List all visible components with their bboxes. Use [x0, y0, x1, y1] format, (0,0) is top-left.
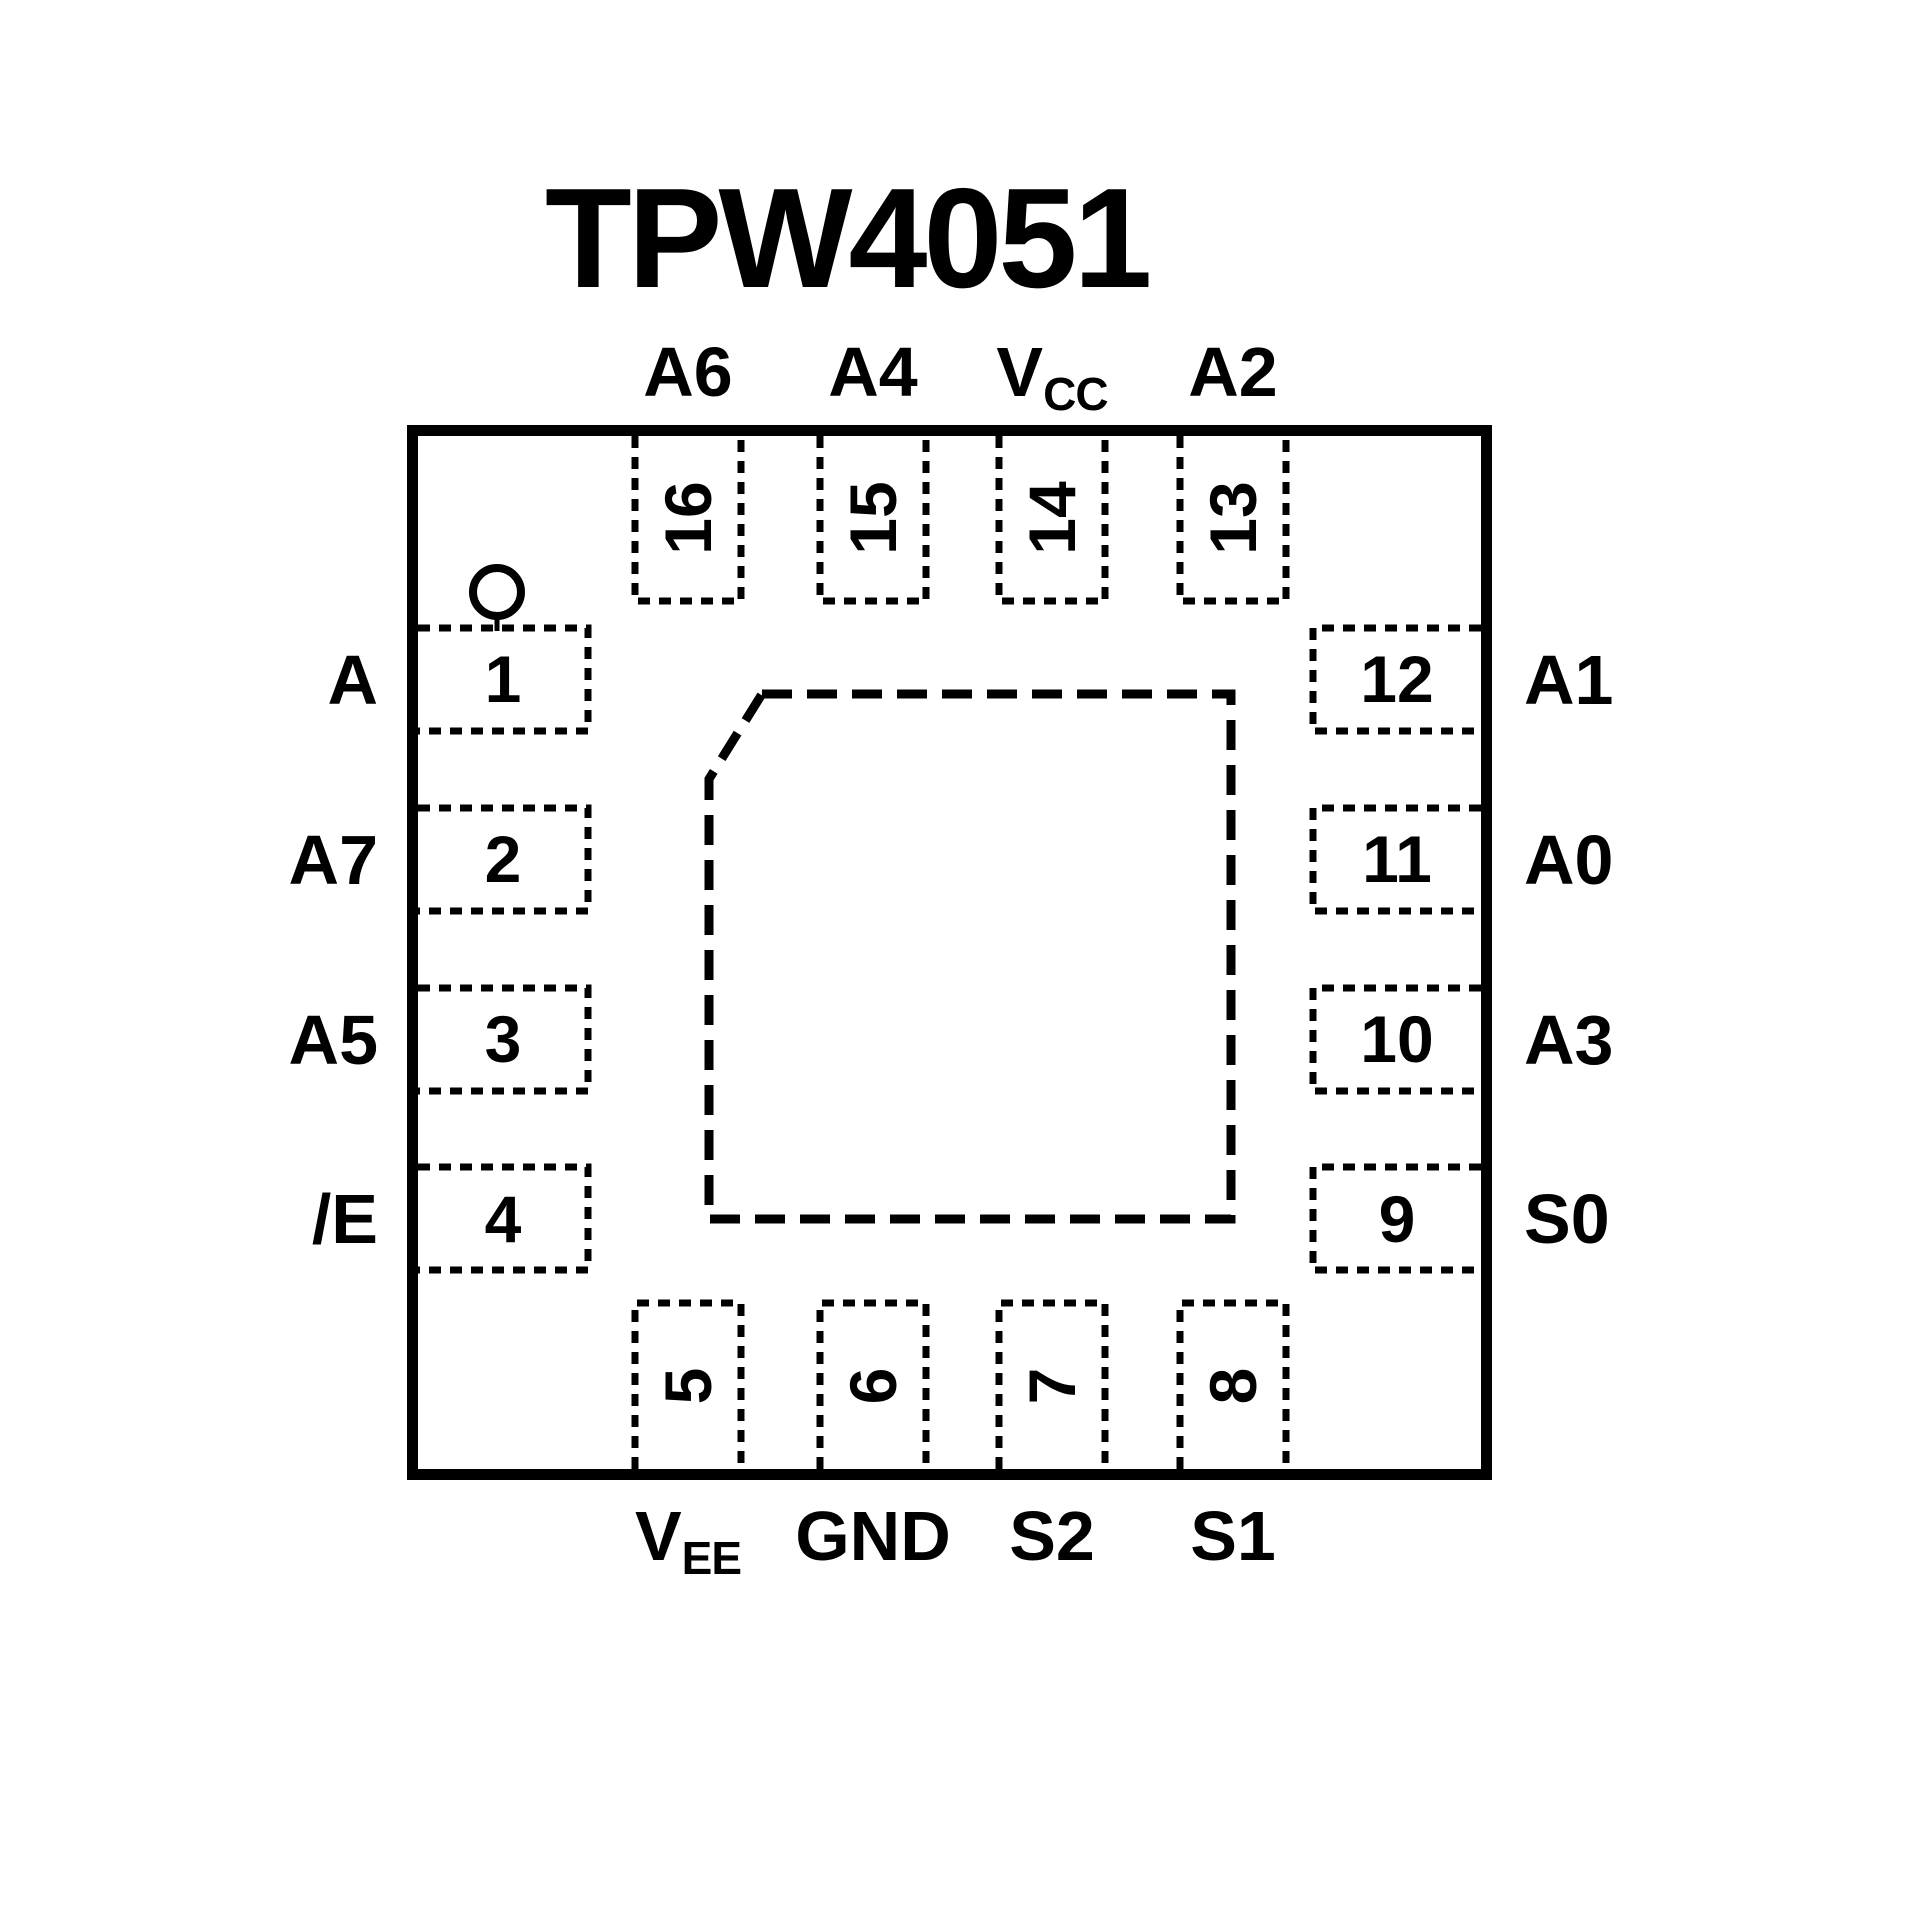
pin-number-14: 14: [1019, 435, 1085, 601]
pin-number-8: 8: [1200, 1303, 1266, 1469]
pin-number-1: 1: [418, 646, 588, 712]
pin-number-11: 11: [1312, 826, 1482, 892]
pin-label-a: A: [78, 644, 378, 716]
thermal-pad-outline: [709, 694, 1231, 1219]
pin-number-13: 13: [1200, 435, 1266, 601]
pin-number-4: 4: [418, 1186, 588, 1252]
pin-number-6: 6: [840, 1303, 906, 1469]
pin-number-15: 15: [840, 435, 906, 601]
pin-number-3: 3: [418, 1006, 588, 1072]
pin-label-a5: A5: [78, 1004, 378, 1076]
pin-number-2: 2: [418, 826, 588, 892]
pin-label-a7: A7: [78, 824, 378, 896]
pin-number-9: 9: [1312, 1186, 1482, 1252]
pinout-page: TPW4051 A6 A4 VCC A2 VEE GND S2 S1 A A7 …: [0, 0, 1920, 1920]
pin-label-e-bar: /E: [78, 1183, 378, 1255]
pin-label-a3: A3: [1524, 1004, 1824, 1076]
pin-label-a0: A0: [1524, 824, 1824, 896]
pin-number-16: 16: [655, 435, 721, 601]
pin-number-10: 10: [1312, 1006, 1482, 1072]
pin-label-s1: S1: [1083, 1500, 1383, 1572]
page-title: TPW4051: [545, 168, 1148, 310]
pin-label-s0: S0: [1524, 1183, 1824, 1255]
chip-outline: [413, 431, 1487, 1475]
pin-number-7: 7: [1019, 1303, 1085, 1469]
pin-label-a2: A2: [1083, 336, 1383, 408]
pin-number-5: 5: [655, 1303, 721, 1469]
pin-label-a1: A1: [1524, 644, 1824, 716]
pin1-indicator-icon: [473, 568, 521, 616]
pin-number-12: 12: [1312, 646, 1482, 712]
